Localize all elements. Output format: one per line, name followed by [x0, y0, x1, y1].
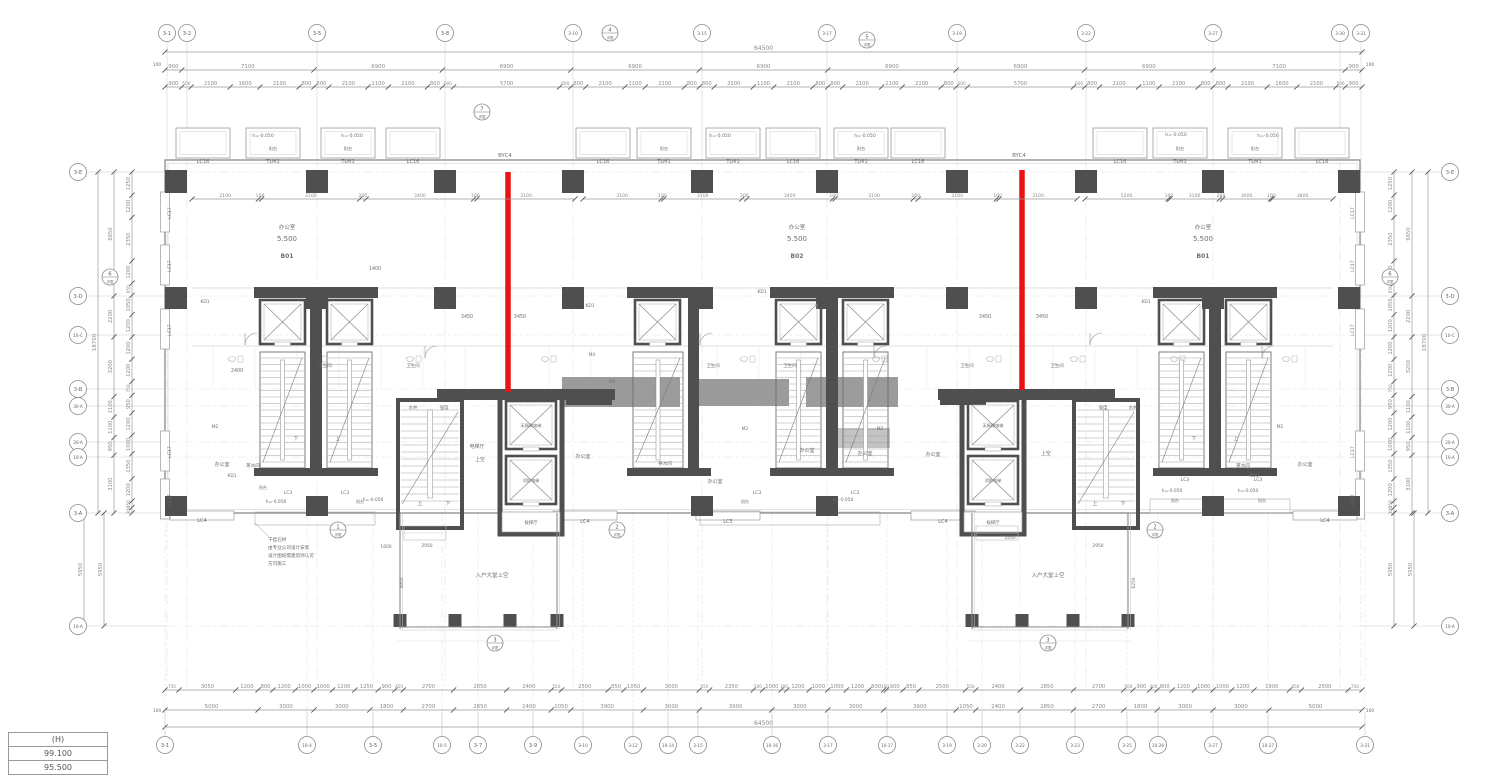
svg-text:详图: 详图 — [614, 532, 621, 537]
svg-text:KD1: KD1 — [1249, 473, 1258, 479]
svg-text:7100: 7100 — [241, 64, 255, 70]
svg-text:TLM1: TLM1 — [656, 159, 670, 165]
svg-text:h=-0.050: h=-0.050 — [341, 133, 363, 139]
svg-text:100: 100 — [1366, 708, 1375, 714]
svg-text:3-7: 3-7 — [474, 743, 482, 749]
svg-text:详图: 详图 — [607, 35, 614, 40]
svg-text:950: 950 — [108, 441, 114, 451]
svg-text:设计图纸需建筑师认可: 设计图纸需建筑师认可 — [268, 552, 314, 559]
svg-text:2350: 2350 — [725, 684, 738, 690]
svg-text:6900: 6900 — [371, 64, 385, 70]
svg-text:650: 650 — [1388, 285, 1393, 293]
svg-text:3400: 3400 — [784, 193, 796, 199]
svg-text:详图: 详图 — [107, 279, 114, 284]
svg-text:LC16: LC16 — [197, 159, 210, 165]
svg-text:64500: 64500 — [754, 45, 773, 52]
svg-text:M2: M2 — [1277, 424, 1284, 430]
svg-text:10-C: 10-C — [73, 333, 83, 338]
svg-text:上空: 上空 — [1041, 450, 1051, 457]
svg-text:5950: 5950 — [1388, 563, 1394, 576]
svg-text:30-A: 30-A — [73, 404, 83, 409]
svg-text:办公室: 办公室 — [214, 461, 229, 468]
svg-text:1800: 1800 — [380, 704, 394, 710]
svg-text:办公室: 办公室 — [1195, 223, 1212, 231]
svg-text:5: 5 — [865, 35, 868, 41]
svg-text:750: 750 — [1388, 384, 1393, 392]
svg-text:候梯厅: 候梯厅 — [524, 519, 538, 526]
svg-text:1200: 1200 — [126, 265, 132, 278]
svg-text:B02: B02 — [791, 253, 804, 260]
svg-text:LC5: LC5 — [723, 519, 732, 525]
svg-text:详图: 详图 — [1045, 645, 1052, 650]
svg-text:办公室: 办公室 — [279, 223, 296, 231]
cad-sheet[interactable]: 6450090071006900690069006900690069006900… — [0, 0, 1490, 778]
svg-text:850: 850 — [906, 684, 916, 690]
svg-text:阳台: 阳台 — [1171, 497, 1179, 503]
svg-text:2700: 2700 — [1092, 684, 1105, 690]
svg-text:TLM1: TLM1 — [725, 159, 739, 165]
svg-text:3-2: 3-2 — [183, 31, 191, 37]
svg-text:强电: 强电 — [1099, 404, 1108, 411]
svg-text:800: 800 — [1160, 684, 1170, 690]
svg-text:3100: 3100 — [1406, 478, 1412, 491]
svg-text:20-A: 20-A — [73, 440, 83, 445]
svg-text:无障碍电梯: 无障碍电梯 — [521, 422, 542, 429]
svg-text:2: 2 — [615, 525, 618, 531]
svg-text:阳台: 阳台 — [1251, 145, 1259, 152]
svg-text:3-E: 3-E — [74, 170, 82, 176]
svg-text:B01: B01 — [281, 253, 294, 260]
svg-text:2200: 2200 — [1406, 310, 1412, 323]
svg-text:2100: 2100 — [401, 81, 414, 87]
svg-text:1050: 1050 — [959, 704, 973, 710]
svg-text:茶水间: 茶水间 — [658, 460, 672, 467]
svg-text:2100: 2100 — [856, 81, 869, 87]
svg-text:3450: 3450 — [461, 314, 473, 320]
svg-text:LC17: LC17 — [167, 207, 173, 219]
svg-text:3550: 3550 — [1004, 535, 1015, 541]
svg-text:7: 7 — [480, 107, 483, 113]
svg-text:h=-0.050: h=-0.050 — [1238, 488, 1259, 494]
svg-text:1200: 1200 — [240, 684, 253, 690]
svg-text:3100: 3100 — [1032, 193, 1044, 199]
svg-text:6900: 6900 — [1142, 64, 1156, 70]
svg-text:入户大堂上空: 入户大堂上空 — [475, 571, 509, 579]
svg-text:LC16: LC16 — [597, 159, 610, 165]
elevation-table-header: (H) — [8, 732, 108, 746]
svg-text:100: 100 — [256, 193, 265, 199]
svg-text:1200: 1200 — [126, 319, 132, 332]
svg-text:2700: 2700 — [422, 684, 435, 690]
svg-text:1100: 1100 — [757, 81, 770, 87]
svg-text:3-A: 3-A — [74, 511, 83, 517]
svg-text:18700: 18700 — [92, 333, 98, 351]
svg-text:1100: 1100 — [1406, 421, 1412, 434]
svg-text:1100: 1100 — [372, 81, 385, 87]
svg-text:3-D: 3-D — [73, 294, 82, 300]
svg-text:2100: 2100 — [727, 81, 740, 87]
svg-text:h=-0.050: h=-0.050 — [833, 497, 854, 503]
svg-text:3200: 3200 — [108, 360, 114, 373]
svg-text:3-1: 3-1 — [161, 743, 169, 749]
svg-text:800: 800 — [573, 81, 583, 87]
svg-text:800: 800 — [1201, 81, 1211, 87]
svg-text:4: 4 — [608, 28, 611, 34]
svg-text:10-C: 10-C — [1445, 333, 1455, 338]
svg-text:KD1: KD1 — [227, 473, 236, 479]
svg-text:1200: 1200 — [278, 684, 291, 690]
svg-text:6900: 6900 — [1014, 64, 1028, 70]
svg-text:10-4: 10-4 — [302, 743, 312, 748]
svg-text:600: 600 — [958, 81, 966, 86]
svg-text:3100: 3100 — [868, 193, 880, 199]
svg-text:750: 750 — [126, 384, 131, 392]
svg-text:1200: 1200 — [126, 417, 132, 430]
svg-text:30-A: 30-A — [1445, 404, 1455, 409]
svg-text:阳台: 阳台 — [269, 145, 277, 152]
svg-text:LC4: LC4 — [938, 519, 947, 525]
svg-text:3450: 3450 — [1036, 314, 1048, 320]
svg-text:2850: 2850 — [1040, 684, 1053, 690]
svg-text:详图: 详图 — [492, 645, 499, 650]
svg-text:3-22: 3-22 — [1015, 743, 1025, 748]
svg-text:10-A: 10-A — [73, 624, 83, 629]
svg-text:1250: 1250 — [126, 177, 132, 190]
svg-text:详图: 详图 — [1152, 532, 1159, 537]
svg-text:100: 100 — [471, 193, 480, 199]
svg-text:LC16: LC16 — [1316, 159, 1329, 165]
svg-text:6900: 6900 — [628, 64, 642, 70]
svg-text:2700: 2700 — [422, 704, 436, 710]
svg-text:800: 800 — [687, 81, 697, 87]
svg-text:3100: 3100 — [108, 478, 114, 491]
svg-text:1200: 1200 — [1388, 483, 1394, 496]
svg-text:TLM1: TLM1 — [853, 159, 867, 165]
svg-text:1350: 1350 — [1388, 460, 1394, 473]
svg-text:6900: 6900 — [500, 64, 514, 70]
svg-text:3-27: 3-27 — [1208, 31, 1218, 36]
svg-text:2100: 2100 — [1112, 81, 1125, 87]
svg-text:详图: 详图 — [479, 114, 486, 119]
svg-text:1100: 1100 — [108, 421, 114, 434]
svg-text:2700: 2700 — [1092, 704, 1106, 710]
svg-text:办公室: 办公室 — [707, 478, 722, 485]
svg-text:1050: 1050 — [1388, 298, 1394, 311]
svg-text:LC3: LC3 — [1181, 477, 1190, 483]
svg-text:LC17: LC17 — [1350, 260, 1356, 272]
svg-text:750: 750 — [168, 684, 176, 689]
svg-text:600: 600 — [561, 81, 569, 86]
svg-text:LC3: LC3 — [341, 490, 350, 496]
elevation-value: 99.100 — [8, 746, 108, 760]
svg-text:5200: 5200 — [1121, 193, 1133, 199]
svg-text:3100: 3100 — [1189, 193, 1201, 199]
svg-text:3900: 3900 — [913, 704, 927, 710]
svg-text:300: 300 — [1388, 506, 1393, 514]
svg-text:2350: 2350 — [126, 233, 132, 246]
svg-text:办公室: 办公室 — [575, 453, 590, 460]
svg-text:详图: 详图 — [864, 42, 871, 47]
svg-text:3100: 3100 — [616, 193, 628, 199]
svg-text:3000: 3000 — [279, 704, 293, 710]
svg-text:800: 800 — [261, 684, 271, 690]
svg-text:TLM1: TLM1 — [1247, 159, 1261, 165]
svg-text:B01: B01 — [1197, 253, 1210, 260]
svg-text:2850: 2850 — [1040, 704, 1054, 710]
svg-text:由专业公司设计安装: 由专业公司设计安装 — [268, 544, 310, 551]
elevation-value: 95.500 — [8, 760, 108, 775]
svg-text:卫生间: 卫生间 — [706, 362, 719, 369]
svg-text:2100: 2100 — [1310, 81, 1323, 87]
svg-text:h=-0.050: h=-0.050 — [252, 133, 274, 139]
svg-text:100: 100 — [1366, 62, 1375, 68]
svg-text:2950: 2950 — [421, 543, 432, 549]
svg-text:上: 上 — [1234, 435, 1239, 442]
svg-text:800: 800 — [430, 81, 440, 87]
svg-text:850: 850 — [611, 684, 621, 690]
svg-text:10-26: 10-26 — [1152, 743, 1165, 748]
svg-text:1900: 1900 — [1265, 684, 1278, 690]
svg-text:3000: 3000 — [1178, 704, 1192, 710]
svg-text:950: 950 — [126, 399, 132, 409]
svg-text:1100: 1100 — [108, 400, 114, 413]
svg-text:3-15: 3-15 — [697, 31, 707, 36]
svg-text:1050: 1050 — [126, 298, 132, 311]
svg-text:h=-0.050: h=-0.050 — [363, 497, 384, 503]
svg-text:3-31: 3-31 — [1360, 743, 1370, 748]
svg-text:h=-0.056: h=-0.056 — [266, 499, 287, 505]
svg-text:100: 100 — [993, 193, 1002, 199]
svg-text:LC17: LC17 — [167, 260, 173, 272]
svg-text:2500: 2500 — [578, 684, 591, 690]
svg-text:900: 900 — [168, 81, 178, 87]
svg-text:800: 800 — [830, 81, 840, 87]
svg-text:2850: 2850 — [473, 684, 486, 690]
svg-text:消防电梯: 消防电梯 — [523, 477, 540, 484]
svg-text:10-17: 10-17 — [881, 743, 894, 748]
svg-text:1: 1 — [336, 525, 339, 531]
svg-text:M2: M2 — [877, 426, 884, 432]
svg-text:1250: 1250 — [360, 684, 373, 690]
svg-text:3: 3 — [1046, 638, 1049, 644]
svg-text:上: 上 — [336, 435, 341, 442]
svg-text:100: 100 — [153, 708, 162, 714]
svg-text:1600: 1600 — [1275, 81, 1288, 87]
svg-text:550: 550 — [700, 684, 708, 689]
svg-text:阳台: 阳台 — [660, 145, 668, 152]
svg-text:LC3: LC3 — [851, 490, 860, 496]
svg-text:BYC4: BYC4 — [1012, 153, 1026, 159]
svg-text:550: 550 — [552, 684, 560, 689]
svg-text:1000: 1000 — [1388, 438, 1394, 451]
svg-text:2850: 2850 — [473, 704, 487, 710]
svg-text:5950: 5950 — [78, 563, 84, 576]
svg-text:M4: M4 — [589, 352, 596, 357]
svg-text:900: 900 — [168, 64, 179, 70]
svg-text:h=-0.050: h=-0.050 — [1257, 133, 1279, 139]
svg-text:办公室: 办公室 — [925, 451, 940, 458]
svg-text:阳台: 阳台 — [857, 145, 865, 152]
svg-text:2100: 2100 — [1172, 81, 1185, 87]
svg-text:3450: 3450 — [514, 314, 526, 320]
svg-text:M3: M3 — [609, 379, 616, 384]
svg-text:6900: 6900 — [885, 64, 899, 70]
svg-text:3-30: 3-30 — [1335, 31, 1345, 36]
svg-text:LC16: LC16 — [1114, 159, 1127, 165]
svg-text:10-A: 10-A — [1445, 455, 1455, 460]
svg-text:TLM1: TLM1 — [265, 159, 279, 165]
svg-text:1200: 1200 — [791, 684, 804, 690]
svg-text:卫生间: 卫生间 — [406, 362, 419, 369]
svg-text:1200: 1200 — [1388, 417, 1394, 430]
svg-text:1200: 1200 — [1388, 364, 1394, 377]
floor-plan-canvas: 6450090071006900690069006900690069006900… — [0, 0, 1490, 778]
svg-text:10-A: 10-A — [1445, 624, 1455, 629]
svg-text:5000: 5000 — [1309, 704, 1323, 710]
svg-text:100: 100 — [658, 193, 667, 199]
svg-text:h=-0.050: h=-0.050 — [1165, 132, 1187, 138]
svg-text:下: 下 — [1192, 436, 1197, 442]
svg-text:3100: 3100 — [305, 193, 317, 199]
svg-text:3: 3 — [493, 638, 496, 644]
svg-text:1350: 1350 — [126, 460, 132, 473]
svg-text:1000: 1000 — [1197, 684, 1210, 690]
svg-text:3000: 3000 — [849, 704, 863, 710]
svg-text:3-E: 3-E — [1446, 170, 1454, 176]
svg-text:400: 400 — [1150, 684, 1158, 689]
svg-text:LC16: LC16 — [407, 159, 420, 165]
svg-text:1200: 1200 — [1388, 341, 1394, 354]
svg-text:茶水间: 茶水间 — [1236, 462, 1250, 469]
svg-text:1200: 1200 — [126, 483, 132, 496]
svg-text:3200: 3200 — [1406, 360, 1412, 373]
svg-text:M2: M2 — [742, 426, 749, 432]
svg-text:950: 950 — [1406, 441, 1412, 451]
svg-text:阳台: 阳台 — [356, 498, 364, 504]
svg-text:1000: 1000 — [765, 684, 778, 690]
svg-text:3000: 3000 — [664, 704, 678, 710]
svg-text:600: 600 — [444, 81, 452, 86]
svg-text:入户大堂上空: 入户大堂上空 — [1031, 571, 1065, 579]
svg-text:3-19: 3-19 — [942, 743, 952, 748]
svg-text:1100: 1100 — [885, 81, 898, 87]
svg-text:3-31: 3-31 — [1356, 31, 1366, 36]
svg-text:消防电梯: 消防电梯 — [985, 477, 1002, 484]
svg-text:阳台: 阳台 — [1176, 145, 1184, 152]
svg-text:1800: 1800 — [1134, 704, 1148, 710]
svg-text:3-A: 3-A — [1446, 511, 1455, 517]
svg-text:2350: 2350 — [1388, 233, 1394, 246]
svg-text:3-27: 3-27 — [1208, 743, 1218, 748]
svg-text:200: 200 — [1217, 193, 1226, 199]
svg-text:6650: 6650 — [1406, 227, 1412, 240]
svg-text:候梯厅: 候梯厅 — [986, 519, 1000, 526]
svg-text:3-B: 3-B — [74, 387, 83, 393]
svg-text:600: 600 — [1075, 81, 1083, 86]
svg-text:800: 800 — [815, 81, 825, 87]
svg-text:3-12: 3-12 — [628, 743, 638, 748]
svg-text:3000: 3000 — [335, 704, 349, 710]
svg-text:3000: 3000 — [1234, 704, 1248, 710]
svg-text:3-17: 3-17 — [822, 31, 832, 36]
svg-text:1100: 1100 — [1406, 400, 1412, 413]
svg-text:1000: 1000 — [126, 438, 132, 451]
svg-text:KD1: KD1 — [1141, 299, 1150, 305]
svg-text:800: 800 — [1216, 81, 1226, 87]
svg-text:4950: 4950 — [399, 577, 405, 588]
svg-text:1200: 1200 — [126, 364, 132, 377]
svg-text:LC3: LC3 — [753, 490, 762, 496]
svg-text:下: 下 — [294, 436, 299, 442]
svg-text:800: 800 — [316, 81, 326, 87]
svg-text:6: 6 — [108, 272, 111, 278]
svg-text:LC4: LC4 — [1320, 518, 1329, 524]
svg-text:2100: 2100 — [219, 193, 231, 199]
svg-text:2100: 2100 — [342, 81, 355, 87]
svg-text:800: 800 — [302, 81, 312, 87]
svg-text:LC17: LC17 — [1350, 207, 1356, 219]
svg-text:6250: 6250 — [1131, 577, 1137, 588]
svg-text:办公室: 办公室 — [789, 223, 806, 231]
svg-text:500: 500 — [1337, 81, 1345, 86]
svg-text:1000: 1000 — [812, 684, 825, 690]
svg-text:650: 650 — [126, 285, 131, 293]
svg-text:3100: 3100 — [951, 193, 963, 199]
svg-text:6: 6 — [1388, 272, 1391, 278]
svg-text:1200: 1200 — [126, 200, 132, 213]
svg-text:方可施工: 方可施工 — [268, 560, 287, 567]
svg-text:3450: 3450 — [979, 314, 991, 320]
svg-text:750: 750 — [1351, 684, 1359, 689]
svg-text:LC4: LC4 — [197, 518, 206, 524]
svg-text:5700: 5700 — [1014, 81, 1027, 87]
svg-text:KD1: KD1 — [757, 289, 766, 295]
svg-text:900: 900 — [382, 684, 392, 690]
svg-text:900: 900 — [1348, 64, 1359, 70]
svg-text:水井: 水井 — [1129, 404, 1138, 411]
svg-text:2100: 2100 — [273, 81, 286, 87]
svg-text:800: 800 — [871, 684, 881, 690]
svg-text:详图: 详图 — [335, 532, 342, 537]
svg-text:卫生间: 卫生间 — [1050, 362, 1063, 369]
svg-text:2500: 2500 — [936, 684, 949, 690]
svg-text:卫生间: 卫生间 — [960, 362, 973, 369]
svg-text:上空: 上空 — [475, 456, 485, 463]
svg-text:BYC4: BYC4 — [498, 153, 512, 159]
svg-text:阳台: 阳台 — [1258, 497, 1266, 503]
svg-text:1000: 1000 — [1216, 684, 1229, 690]
svg-text:5.500: 5.500 — [277, 235, 297, 243]
svg-text:LC17: LC17 — [167, 494, 173, 506]
svg-text:卫生间: 卫生间 — [783, 362, 796, 369]
svg-text:2400: 2400 — [231, 368, 243, 374]
svg-text:3900: 3900 — [729, 704, 743, 710]
svg-text:2950: 2950 — [1092, 543, 1103, 549]
svg-text:100: 100 — [153, 62, 162, 68]
svg-text:水井: 水井 — [409, 404, 418, 411]
svg-text:TLM1: TLM1 — [340, 159, 354, 165]
svg-text:500: 500 — [754, 684, 762, 689]
svg-text:3-5: 3-5 — [369, 743, 377, 749]
svg-text:10-27: 10-27 — [1262, 743, 1275, 748]
svg-text:LC17: LC17 — [167, 324, 173, 336]
svg-text:1400: 1400 — [369, 266, 381, 272]
svg-text:500: 500 — [182, 81, 190, 86]
svg-text:3100: 3100 — [520, 193, 532, 199]
svg-text:20-A: 20-A — [1445, 440, 1455, 445]
svg-text:详图: 详图 — [1387, 279, 1394, 284]
svg-text:1200: 1200 — [126, 341, 132, 354]
